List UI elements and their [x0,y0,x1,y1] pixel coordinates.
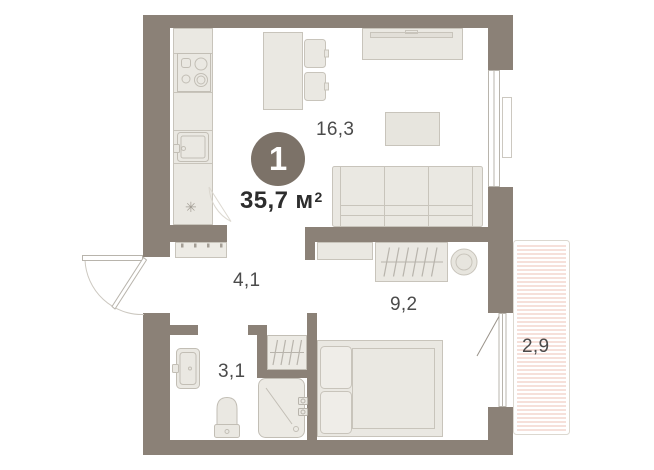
window-sill [503,98,512,158]
dining-table [264,33,303,110]
wall-living-bedroom [305,227,513,242]
floor-plan: 1 35,7 м2 16,3 4,1 9,2 3,1 2,9 ✳ [0,0,654,470]
bathroom-sink [173,349,200,389]
pillow [321,392,352,434]
wall-bathroom-stub-left [170,325,198,335]
fridge-icon: ✳ [185,199,197,216]
unit-number-badge: 1 [251,132,305,186]
chair-back [325,50,329,57]
sofa [333,167,483,227]
shower [259,379,308,438]
shoe-rack [176,243,227,258]
entry-door [83,256,147,315]
toilet [215,398,240,438]
floor-plan-drawing [0,0,654,470]
dining-chairs [305,40,329,101]
wall-kitchen-hall [170,225,227,242]
wall-left-lower [143,313,170,455]
coffee-table [386,113,440,146]
balcony-door-leaf [477,317,499,357]
total-area-label: 35,7 м2 [240,187,323,215]
entry-door-leaf [112,258,147,310]
wall-bathroom-stub-right [248,325,267,335]
hall-closet [268,336,307,370]
pouf [451,249,477,275]
bathroom-area-label: 3,1 [218,361,245,383]
wall-right-bottom [488,407,513,455]
faucet-icon [173,365,179,373]
unit-number: 1 [269,140,287,178]
pillow [321,347,352,389]
living-kitchen-area-label: 16,3 [316,119,354,141]
wall-top [143,15,513,28]
wall-bottom [143,440,513,455]
hallway-area-label: 4,1 [233,270,260,292]
kitchen-counter [174,29,213,225]
wardrobe [376,243,448,282]
balcony-door [477,314,506,407]
entry-door-leaf-open [83,256,143,261]
tv-console [363,29,463,60]
faucet-icon [174,145,180,153]
chair [305,40,326,68]
bed [318,341,443,437]
wall-right-middle [488,187,513,313]
chair [305,73,326,101]
wall-right-top [488,15,513,70]
wall-closet-south [257,370,307,378]
living-room-window [489,71,512,187]
chair-back [325,83,329,90]
dresser [318,243,373,260]
wall-hall-bedroom [307,313,317,440]
balcony-area-label: 2,9 [522,336,549,358]
wall-bedroom-door-jamb [305,242,315,260]
kitchen-sink [174,133,209,162]
wall-left-upper [143,15,170,257]
bedroom-area-label: 9,2 [390,294,417,316]
